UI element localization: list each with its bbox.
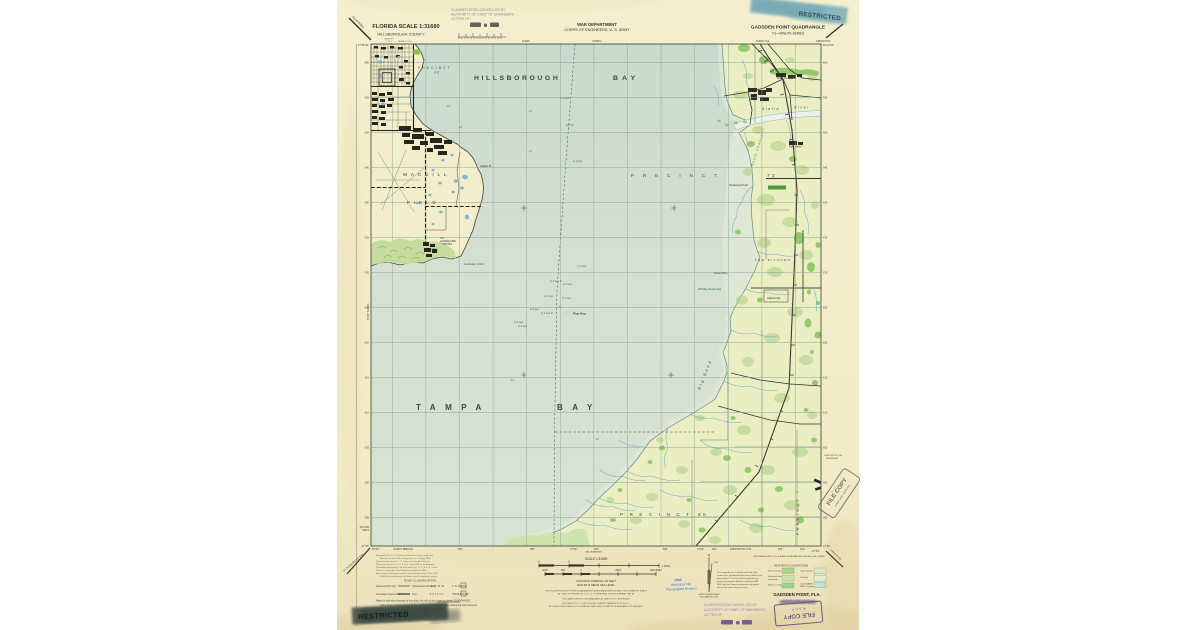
svg-text:(TALLAHASSEE): (TALLAHASSEE) xyxy=(585,551,602,554)
svg-text:Lt 4 sec: Lt 4 sec xyxy=(530,307,540,311)
svg-text:TAMPA & THOR.: TAMPA & THOR. xyxy=(398,40,413,43)
svg-text:640: 640 xyxy=(823,201,828,205)
svg-text:U. S. ROUTE: U. S. ROUTE xyxy=(452,585,467,588)
svg-text:82°22'30": 82°22'30" xyxy=(823,43,834,47)
svg-text:LETTER OF: LETTER OF xyxy=(704,613,722,617)
svg-text:direction of the Chief of Engi: direction of the Chief of Engineers, U. … xyxy=(380,557,431,560)
svg-text:GIBSONTON 3 MI.: GIBSONTON 3 MI. xyxy=(730,547,752,551)
svg-text:GIBSONTON: GIBSONTON xyxy=(816,40,831,43)
svg-text:Alafia: Alafia xyxy=(761,107,780,111)
svg-text:THE KITCHEN: THE KITCHEN xyxy=(755,258,791,262)
svg-text:Mapped by the U. S. Coast and: Mapped by the U. S. Coast and Geodetic S… xyxy=(376,554,434,557)
svg-text:HILLSBOROUGH: HILLSBOROUGH xyxy=(474,75,560,82)
svg-text:½: ½ xyxy=(568,560,570,564)
svg-text:Unimproved dirt road: Unimproved dirt road xyxy=(412,585,435,588)
svg-text:600: 600 xyxy=(712,547,717,551)
svg-text:Lt 2 sec: Lt 2 sec xyxy=(573,159,583,163)
svg-text:27°45': 27°45' xyxy=(823,544,831,548)
svg-text:27°45': 27°45' xyxy=(362,544,370,548)
svg-text:Dense woods: Dense woods xyxy=(768,571,782,573)
svg-text:FOR SALE BY U. S. GEOLOGICAL S: FOR SALE BY U. S. GEOLOGICAL SURVEY, WAS… xyxy=(562,602,631,605)
svg-text:655: 655 xyxy=(823,96,828,100)
svg-text:605: 605 xyxy=(823,446,828,450)
svg-text:AT TIME OF PRINTED BY U S C &: AT TIME OF PRINTED BY U S C & G S FEDERA… xyxy=(558,593,635,596)
svg-text:WAR DEPARTMENT: WAR DEPARTMENT xyxy=(577,22,617,27)
svg-text:AUTHORITY OF CHIEF OF ENGINEER: AUTHORITY OF CHIEF OF ENGINEERS xyxy=(451,13,515,17)
svg-text:TAMPA 4 MI.: TAMPA 4 MI. xyxy=(756,40,770,43)
svg-text:precautions "R" etc this shall: precautions "R" etc this shall comply wi… xyxy=(717,577,759,580)
svg-text:Hendersons Point: Hendersons Point xyxy=(729,184,748,187)
svg-text:Gadsden Point: Gadsden Point xyxy=(464,262,484,266)
svg-text:Scattered trees: Scattered trees xyxy=(768,575,784,578)
svg-text:T 31 S: T 31 S xyxy=(386,41,392,43)
svg-text:500: 500 xyxy=(561,569,566,572)
svg-text:VEGETATION CLASSIFICATION: VEGETATION CLASSIFICATION xyxy=(774,565,808,568)
svg-text:PRECINCT: PRECINCT xyxy=(620,512,695,517)
svg-text:PRECINCT 7: PRECINCT 7 xyxy=(796,489,800,535)
svg-text:Improved dirt road: Improved dirt road xyxy=(376,585,396,588)
svg-text:BAY: BAY xyxy=(613,75,639,82)
svg-text:Lt 2 sec: Lt 2 sec xyxy=(562,296,572,300)
svg-text:CORPS OF ENGINEERS, U. S. ARMY: CORPS OF ENGINEERS, U. S. ARMY xyxy=(564,28,630,32)
svg-text:GIBSONTON 2 MI.: GIBSONTON 2 MI. xyxy=(824,455,843,457)
svg-text:73: 73 xyxy=(767,173,777,178)
svg-text:595: 595 xyxy=(663,547,668,551)
svg-text:2000: 2000 xyxy=(615,569,621,572)
svg-text:Whiskey Stump Key: Whiskey Stump Key xyxy=(698,287,722,291)
svg-text:mation as to classified matter: mation as to classified matter herein sh… xyxy=(717,574,762,577)
svg-text:Partial revision by the U. S.: Partial revision by the U. S. Coast and … xyxy=(376,560,431,563)
svg-text:GADSDEN POINT, FLA.: GADSDEN POINT, FLA. xyxy=(773,592,820,597)
svg-text:Lt 2 sec: Lt 2 sec xyxy=(563,282,573,286)
svg-text:and brush: and brush xyxy=(768,578,779,581)
svg-text:610: 610 xyxy=(365,411,370,415)
svg-text:GADSDEN POINT QUADRANGLE: GADSDEN POINT QUADRANGLE xyxy=(751,24,825,29)
svg-text:645: 645 xyxy=(823,166,828,170)
svg-text:★: ★ xyxy=(708,553,711,557)
svg-text:Lt 4 sec: Lt 4 sec xyxy=(514,320,524,324)
svg-text:630: 630 xyxy=(823,271,828,275)
svg-text:645: 645 xyxy=(365,166,370,170)
svg-text:Planimetry by the U. S. C. & G: Planimetry by the U. S. C. & G. S. from … xyxy=(376,563,436,566)
svg-text:Trail: Trail xyxy=(412,593,417,596)
svg-text:47'30": 47'30" xyxy=(570,547,577,551)
svg-text:1 MILE: 1 MILE xyxy=(662,564,670,568)
svg-text:650: 650 xyxy=(823,131,828,135)
svg-text:Lt: Lt xyxy=(559,305,561,309)
svg-text:660: 660 xyxy=(365,61,370,65)
svg-text:640: 640 xyxy=(365,201,370,205)
svg-text:LETTER OF: LETTER OF xyxy=(451,17,470,21)
svg-text:HILLSBOROUGH COUNTY: HILLSBOROUGH COUNTY xyxy=(377,33,425,37)
svg-text:Lt 2 sec: Lt 2 sec xyxy=(518,324,528,328)
svg-text:630: 630 xyxy=(365,271,370,275)
svg-text:600: 600 xyxy=(823,481,828,485)
svg-text:615: 615 xyxy=(365,376,370,380)
svg-text:This mapped area is military r: This mapped area is military restricted.… xyxy=(717,571,758,574)
svg-text:GANDY BRIDGE: GANDY BRIDGE xyxy=(393,547,413,551)
svg-text:80: 80 xyxy=(698,512,708,517)
svg-text:STATION: STATION xyxy=(442,243,452,246)
svg-text:1°30': 1°30' xyxy=(714,562,720,564)
svg-text:A FOLDER DESCRIBING TOPOGRAPHI: A FOLDER DESCRIBING TOPOGRAPHIC MAPS AND… xyxy=(549,605,644,608)
svg-text:tions of the work may of the m: tions of the work may of the may. xyxy=(717,586,748,589)
svg-text:635: 635 xyxy=(365,236,370,240)
svg-text:Open woods: Open woods xyxy=(800,571,813,573)
svg-text:Orchard: Orchard xyxy=(800,576,809,579)
svg-text:Pine Key: Pine Key xyxy=(573,312,586,316)
svg-text:AUTHORITY OF CHIEF OF ENGINEER: AUTHORITY OF CHIEF OF ENGINEERS xyxy=(704,608,766,612)
svg-text:CLASSIFICATION CANCELLED BY: CLASSIFICATION CANCELLED BY xyxy=(451,8,506,12)
svg-text:Green Bay: Green Bay xyxy=(714,271,728,275)
svg-text:595: 595 xyxy=(365,516,370,520)
svg-text:605: 605 xyxy=(365,446,370,450)
svg-text:655: 655 xyxy=(365,96,370,100)
svg-text:East Tampa: East Tampa xyxy=(777,76,793,80)
svg-text:590: 590 xyxy=(594,547,599,551)
svg-text:27°45': 27°45' xyxy=(812,549,820,553)
svg-text:FLORIDA SCALE 1:31680: FLORIDA SCALE 1:31680 xyxy=(372,24,439,30)
svg-text:620: 620 xyxy=(365,341,370,345)
svg-text:585: 585 xyxy=(530,547,535,551)
svg-text:FIELDS (open): FIELDS (open) xyxy=(800,586,815,588)
svg-text:660: 660 xyxy=(823,61,828,65)
svg-text:605: 605 xyxy=(778,547,783,551)
svg-text:FEET: FEET xyxy=(362,528,369,532)
svg-text:610: 610 xyxy=(823,411,828,415)
svg-text:Lt 4 sec R: Lt 4 sec R xyxy=(550,279,562,283)
svg-text:RIVERVIEW: RIVERVIEW xyxy=(826,458,839,460)
svg-text:4000 FEET: 4000 FEET xyxy=(650,569,663,572)
svg-text:Catfish Pt: Catfish Pt xyxy=(480,164,492,168)
svg-text:DECLINATION, 1943: DECLINATION, 1943 xyxy=(700,596,720,599)
svg-text:7½—MINUTE SERIES: 7½—MINUTE SERIES xyxy=(772,32,804,36)
svg-text:1000: 1000 xyxy=(542,569,548,572)
svg-text:FIELD: FIELD xyxy=(407,200,440,206)
svg-text:TAMPA: TAMPA xyxy=(522,40,530,43)
svg-text:PRECINCT: PRECINCT xyxy=(631,173,726,178)
svg-text:Lt 4 sec: Lt 4 sec xyxy=(544,294,554,298)
svg-text:SCALE 1:31680: SCALE 1:31680 xyxy=(585,557,608,561)
svg-text:PORT TAMPA: PORT TAMPA xyxy=(366,303,370,320)
svg-text:Lt 2 sec: Lt 2 sec xyxy=(577,264,587,268)
svg-text:620: 620 xyxy=(823,341,828,345)
svg-text:27°52'30": 27°52'30" xyxy=(358,43,369,47)
svg-text:42: 42 xyxy=(434,71,440,75)
svg-text:Planetable topography and fiel: Planetable topography and field work by … xyxy=(376,566,438,569)
svg-text:THE CLASSIFICATION OF THIS QUA: THE CLASSIFICATION OF THIS QUADRANGLE WH… xyxy=(545,590,648,593)
svg-text:INFORMATION AS TO U. S. ARMY R: INFORMATION AS TO U. S. ARMY RESERVATION… xyxy=(753,555,825,558)
svg-text:Lt F W: Lt F W xyxy=(566,123,574,127)
svg-text:650: 650 xyxy=(365,131,370,135)
svg-text:THIS MAPS SHOWS ONE AVAILABLE: THIS MAPS SHOWS ONE AVAILABLE AT LEAST F… xyxy=(562,598,630,601)
svg-text:600: 600 xyxy=(365,481,370,485)
svg-text:595: 595 xyxy=(823,516,828,520)
svg-text:PRECINCT: PRECINCT xyxy=(418,66,452,70)
svg-text:Lt 2 sec R: Lt 2 sec R xyxy=(541,311,553,315)
svg-text:Adamsville: Adamsville xyxy=(767,296,781,300)
svg-text:Palm River: Palm River xyxy=(789,145,802,149)
svg-text:Approximate horizontal control: Approximate horizontal control; vertical… xyxy=(376,572,439,575)
svg-text:82°30': 82°30' xyxy=(372,547,380,551)
svg-text:635: 635 xyxy=(823,236,828,240)
svg-text:580: 580 xyxy=(458,547,463,551)
svg-text:ROAD CLASSIFICATION: ROAD CLASSIFICATION xyxy=(404,579,436,583)
svg-text:DATUM IS MEAN SEA LEVEL: DATUM IS MEAN SEA LEVEL xyxy=(577,583,615,587)
svg-text:STATE ROUTE: STATE ROUTE xyxy=(452,593,469,596)
svg-text:Lt 2 sec: Lt 2 sec xyxy=(560,96,570,100)
svg-text:625: 625 xyxy=(823,306,828,310)
svg-text:River: River xyxy=(794,106,810,110)
svg-text:610: 610 xyxy=(800,547,805,551)
svg-text:37'30": 37'30" xyxy=(697,547,704,551)
svg-text:Polyconic projection. North Am: Polyconic projection. North American dat… xyxy=(376,569,427,572)
svg-text:380-5 and such special measure: 380-5 and such special measures and regu… xyxy=(717,583,759,586)
svg-text:BAY: BAY xyxy=(557,403,602,412)
svg-text:(TAMPA): (TAMPA) xyxy=(592,40,602,43)
svg-text:MACDILL: MACDILL xyxy=(403,172,450,178)
svg-text:615: 615 xyxy=(823,376,828,380)
svg-text:TAMPA: TAMPA xyxy=(416,403,491,412)
svg-text:visions and may be utilized as: visions and may be utilized as directed … xyxy=(717,580,759,583)
svg-text:CLASSIFICATION CANCELLED BY: CLASSIFICATION CANCELLED BY xyxy=(704,603,758,607)
